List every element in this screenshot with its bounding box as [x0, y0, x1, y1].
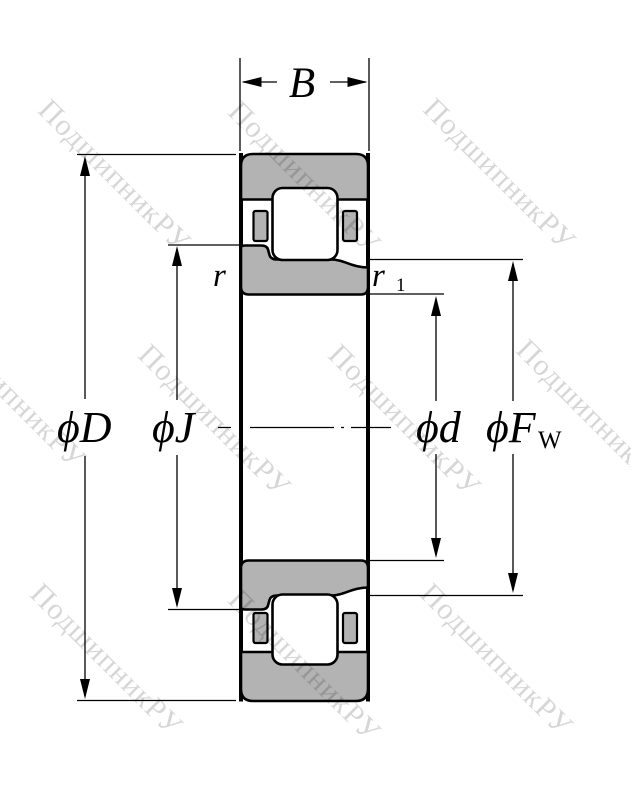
label-chamfer-r1-subscript: 1: [396, 275, 406, 296]
label-rib-diameter: ϕJ: [152, 403, 197, 452]
dimension-phi-Fw: ϕF W: [370, 260, 562, 596]
arrow-down-icon: [172, 588, 182, 608]
arrow-left-icon: [242, 77, 262, 87]
arrow-down-icon: [508, 573, 518, 593]
roller-bottom: [273, 595, 338, 665]
cage-bar-top-left: [254, 211, 268, 241]
label-raceway-diameter: ϕF: [486, 403, 537, 452]
label-width-B: B: [289, 60, 315, 107]
bearing-outline: [218, 153, 396, 702]
dimension-phi-D: ϕD: [57, 155, 236, 701]
arrow-down-icon: [80, 679, 90, 699]
label-chamfer-r1: r: [372, 258, 385, 294]
cage-bar-bottom-left: [254, 613, 268, 643]
arrow-right-icon: [348, 77, 368, 87]
arrow-up-icon: [80, 156, 90, 176]
arrow-up-icon: [172, 246, 182, 266]
arrow-up-icon: [508, 261, 518, 281]
label-chamfer-r: r: [213, 258, 226, 294]
arrow-down-icon: [431, 538, 441, 558]
dimension-B: B: [240, 58, 369, 151]
bearing-drawing: B ϕD ϕJ: [0, 0, 631, 792]
cage-bar-top-right: [343, 211, 357, 241]
label-raceway-diameter-subscript: W: [538, 427, 562, 454]
roller-top: [273, 188, 338, 260]
label-bore-diameter: ϕd: [416, 403, 462, 452]
arrow-up-icon: [431, 296, 441, 316]
label-outer-diameter: ϕD: [57, 403, 112, 452]
bearing-diagram-svg: B ϕD ϕJ: [0, 0, 631, 792]
cage-bar-bottom-right: [343, 613, 357, 643]
